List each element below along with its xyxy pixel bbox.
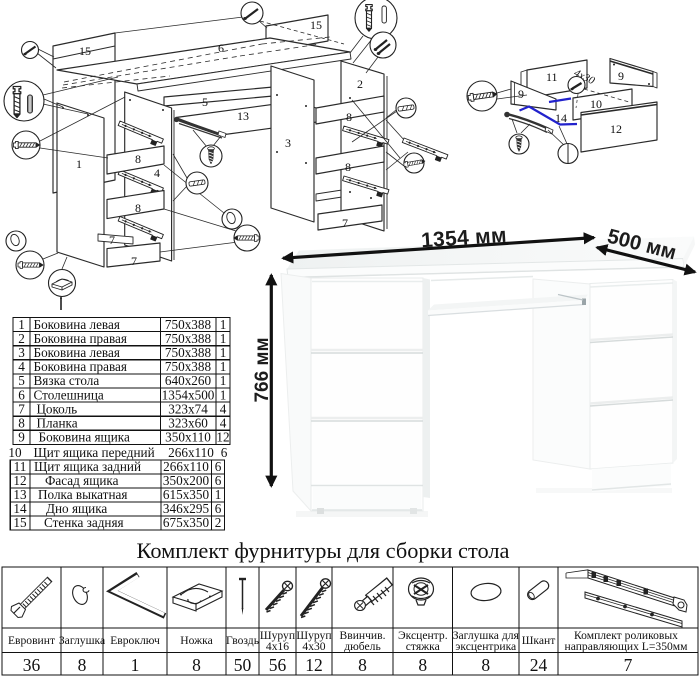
svg-text:8: 8 <box>135 152 141 166</box>
svg-text:Боковина правая: Боковина правая <box>34 331 127 346</box>
svg-text:24: 24 <box>530 655 548 675</box>
svg-text:5: 5 <box>202 95 208 109</box>
svg-text:Ножка: Ножка <box>180 634 213 647</box>
svg-text:8: 8 <box>346 110 352 124</box>
svg-text:4х30: 4х30 <box>302 640 325 653</box>
svg-text:50: 50 <box>234 655 252 675</box>
svg-text:1: 1 <box>76 157 82 171</box>
svg-text:350x200: 350x200 <box>163 473 210 488</box>
svg-text:Дно ящика: Дно ящика <box>46 501 107 516</box>
svg-text:8: 8 <box>358 655 367 675</box>
svg-text:13: 13 <box>237 109 249 123</box>
svg-text:Боковина левая: Боковина левая <box>34 317 120 332</box>
svg-text:750x388: 750x388 <box>165 345 212 360</box>
svg-text:8: 8 <box>135 201 141 215</box>
svg-text:8: 8 <box>18 416 25 431</box>
svg-text:8: 8 <box>192 655 201 675</box>
svg-text:7: 7 <box>131 254 137 268</box>
svg-text:9: 9 <box>18 430 25 445</box>
svg-text:12: 12 <box>13 473 26 488</box>
svg-text:346x295: 346x295 <box>163 501 210 516</box>
svg-text:Планка: Планка <box>37 416 78 431</box>
svg-text:750x388: 750x388 <box>165 359 212 374</box>
svg-text:1: 1 <box>131 655 140 675</box>
svg-text:9: 9 <box>518 87 524 101</box>
svg-text:6: 6 <box>221 445 228 460</box>
svg-text:14: 14 <box>555 111 567 125</box>
svg-text:266x110: 266x110 <box>168 445 214 460</box>
svg-text:7: 7 <box>342 216 348 230</box>
svg-text:15: 15 <box>79 44 91 58</box>
svg-text:9: 9 <box>618 69 624 83</box>
svg-text:1354x500: 1354x500 <box>162 387 215 402</box>
svg-text:1: 1 <box>220 373 227 388</box>
svg-text:266x110: 266x110 <box>163 459 209 474</box>
svg-text:2: 2 <box>357 77 363 91</box>
svg-text:1: 1 <box>220 317 227 332</box>
svg-text:Комплект фурнитуры для сборки: Комплект фурнитуры для сборки стола <box>137 538 510 563</box>
svg-text:Вязка стола: Вязка стола <box>34 373 100 388</box>
svg-text:11: 11 <box>546 70 558 84</box>
svg-text:Стенка задняя: Стенка задняя <box>44 515 124 530</box>
svg-text:1: 1 <box>18 317 25 332</box>
svg-text:10: 10 <box>590 97 602 111</box>
svg-text:Заглушка: Заглушка <box>59 634 105 647</box>
svg-text:12: 12 <box>305 655 323 675</box>
svg-text:Евроключ: Евроключ <box>110 634 160 647</box>
svg-text:12: 12 <box>216 430 229 445</box>
svg-text:2: 2 <box>18 331 25 346</box>
svg-text:8: 8 <box>418 655 427 675</box>
svg-text:56: 56 <box>269 655 287 675</box>
svg-text:1: 1 <box>220 331 227 346</box>
svg-text:эксцентрика: эксцентрика <box>455 640 516 653</box>
svg-text:15: 15 <box>13 515 27 530</box>
svg-text:4: 4 <box>154 166 160 180</box>
svg-text:7: 7 <box>624 655 633 675</box>
svg-text:7: 7 <box>18 401 25 416</box>
svg-text:615x350: 615x350 <box>163 487 210 502</box>
svg-text:10: 10 <box>8 445 22 460</box>
svg-text:1: 1 <box>220 359 227 374</box>
svg-text:6: 6 <box>218 41 224 55</box>
svg-text:750x388: 750x388 <box>165 331 212 346</box>
svg-text:12: 12 <box>610 122 622 136</box>
svg-text:8: 8 <box>345 160 351 174</box>
svg-text:7: 7 <box>109 233 115 247</box>
svg-text:1: 1 <box>220 387 227 402</box>
svg-text:Щит ящика задний: Щит ящика задний <box>34 459 141 474</box>
svg-text:766 мм: 766 мм <box>252 337 273 402</box>
svg-text:4: 4 <box>220 416 227 431</box>
svg-text:Евровинт: Евровинт <box>8 634 55 647</box>
svg-text:36: 36 <box>23 655 41 675</box>
svg-text:3: 3 <box>285 136 291 150</box>
svg-text:Боковина левая: Боковина левая <box>34 345 120 360</box>
svg-text:4: 4 <box>18 359 25 374</box>
svg-text:11: 11 <box>14 459 27 474</box>
svg-text:15: 15 <box>310 18 322 32</box>
svg-text:направляющих L=350мм: направляющих L=350мм <box>565 640 689 653</box>
svg-text:640x260: 640x260 <box>165 373 212 388</box>
svg-text:8: 8 <box>78 655 87 675</box>
svg-text:8: 8 <box>481 655 490 675</box>
svg-text:1: 1 <box>220 345 227 360</box>
svg-text:6: 6 <box>215 459 222 474</box>
svg-text:6: 6 <box>18 387 25 402</box>
svg-text:2: 2 <box>215 515 222 530</box>
svg-text:323x60: 323x60 <box>168 416 208 431</box>
svg-text:Цоколь: Цоколь <box>37 401 78 416</box>
svg-text:Шкант: Шкант <box>522 634 556 647</box>
svg-text:750x388: 750x388 <box>165 317 212 332</box>
svg-text:Щит ящика передний: Щит ящика передний <box>34 445 155 460</box>
svg-text:Гвоздь: Гвоздь <box>226 634 259 647</box>
svg-text:Боковина ящика: Боковина ящика <box>39 430 130 445</box>
svg-text:Полка выкатная: Полка выкатная <box>38 487 127 502</box>
svg-text:4х16: 4х16 <box>266 640 289 653</box>
svg-text:Столешница: Столешница <box>34 387 104 402</box>
svg-text:Фасад ящика: Фасад ящика <box>45 473 119 488</box>
svg-text:дюбель: дюбель <box>344 640 381 653</box>
svg-text:стяжка: стяжка <box>406 640 440 653</box>
svg-text:14: 14 <box>13 501 27 516</box>
svg-text:6: 6 <box>215 501 222 516</box>
svg-text:323x74: 323x74 <box>168 401 208 416</box>
svg-text:13: 13 <box>13 487 27 502</box>
svg-text:4: 4 <box>220 401 227 416</box>
svg-text:675x350: 675x350 <box>163 515 210 530</box>
svg-text:Боковина правая: Боковина правая <box>34 359 127 374</box>
svg-text:1: 1 <box>215 487 222 502</box>
svg-text:5: 5 <box>18 373 25 388</box>
svg-text:350x110: 350x110 <box>165 430 211 445</box>
svg-text:6: 6 <box>215 473 222 488</box>
svg-text:3: 3 <box>18 345 25 360</box>
